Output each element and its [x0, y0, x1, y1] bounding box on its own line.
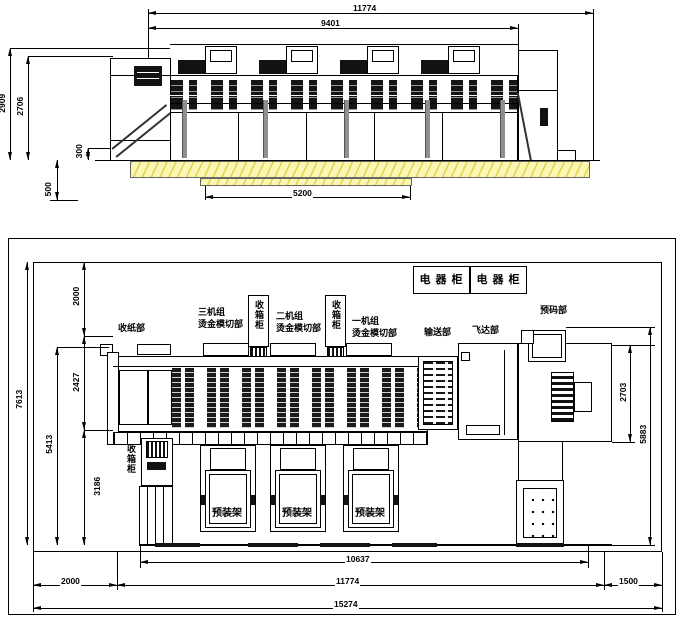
dim-right-unit-depth: 2703 — [619, 383, 628, 402]
dim-left-clearance: 2000 — [60, 577, 81, 586]
dim-line-right-unit-depth — [630, 345, 631, 442]
ladder-rail — [155, 486, 156, 546]
dim-machine-length: 11774 — [335, 577, 360, 586]
floor-pit — [200, 178, 412, 186]
ext-line — [205, 186, 206, 200]
ext-line — [662, 552, 663, 612]
label-unit3-line2: 烫金模切部 — [198, 318, 243, 330]
delivery-cell — [148, 370, 172, 425]
motor-block — [551, 372, 574, 422]
base-chunk — [516, 543, 564, 547]
unit-display-panel — [178, 60, 206, 74]
dim-right-depth: 5883 — [639, 425, 648, 444]
label-collect-cabinet-left: 收箱柜 — [126, 444, 135, 474]
top-extension — [346, 343, 392, 356]
dim-line-right-depth — [650, 327, 651, 545]
label-delivery-section: 收纸部 — [118, 322, 145, 334]
electrical-cabinet-label: 电 器 柜 — [476, 274, 520, 286]
top-extension — [270, 343, 316, 356]
ext-line — [57, 347, 109, 348]
dim-height-machine: 2706 — [16, 97, 25, 116]
label-unit1-section: 一机组 烫金模切部 — [352, 315, 397, 339]
safety-post — [263, 100, 268, 158]
ext-line — [28, 56, 113, 57]
ladder-rail — [163, 486, 164, 546]
electrical-cabinet-box: 电 器 柜 — [470, 266, 527, 294]
safety-post — [425, 100, 430, 158]
body-divider — [238, 112, 239, 160]
unit-display-panel — [340, 60, 368, 74]
ext-line — [593, 9, 594, 160]
dim-line-height-total — [10, 48, 11, 160]
dim-pit-width: 5200 — [292, 189, 313, 198]
label-unit2-section: 二机组 烫金模切部 — [276, 310, 321, 334]
dim-line-machine-depth — [84, 336, 85, 430]
ext-line — [84, 430, 113, 431]
delivery-cell — [119, 370, 148, 425]
feeder-bottom-box — [466, 425, 500, 435]
collect-cabinet-box: 收箱柜 — [325, 295, 346, 347]
label-unit3-section: 三机组 烫金模切部 — [198, 306, 243, 330]
dim-right-clearance: 1500 — [618, 577, 639, 586]
dim-line-total-width — [148, 13, 593, 14]
feeder-inner-line — [504, 350, 505, 435]
label-collect-cabinet: 收箱柜 — [331, 300, 340, 330]
safety-post — [500, 100, 505, 158]
dim-machine-depth: 2427 — [72, 373, 81, 392]
die-cutting-chases — [172, 368, 425, 428]
dim-line-rear-clearance — [84, 262, 85, 336]
dim-line-rack-depth — [84, 430, 85, 545]
rack-tab — [250, 495, 255, 505]
body-divider — [374, 112, 375, 160]
electrical-cabinet-box: 电 器 柜 — [413, 266, 470, 294]
ext-line — [50, 200, 78, 201]
label-unit1-line2: 烫金模切部 — [352, 327, 397, 339]
dim-line-machine-length — [117, 585, 604, 586]
unit-display-panel — [259, 60, 287, 74]
unit-window-inner — [453, 50, 475, 62]
top-extension — [137, 344, 171, 355]
pallet — [523, 488, 557, 538]
dim-total-width: 11774 — [352, 4, 377, 13]
plan-view: 电 器 柜 电 器 柜 收纸部 三机组 烫金模切部 收箱柜 二机组 烫金模切部 … — [0, 230, 684, 623]
ext-line — [117, 552, 118, 590]
control-panel — [134, 66, 162, 86]
conveyor-rollers — [423, 361, 453, 425]
label-unit1-line1: 一机组 — [352, 315, 397, 327]
dim-front-depth: 5413 — [45, 435, 54, 454]
ext-line — [33, 552, 34, 612]
house-mech — [210, 448, 246, 470]
label-unit2-line2: 烫金模切部 — [276, 322, 321, 334]
dim-line-height-machine — [28, 56, 29, 160]
body-line — [170, 44, 518, 45]
label-preload-rack: 预装架 — [282, 507, 312, 521]
label-preload-rack: 预装架 — [355, 507, 385, 521]
feeder-small-box — [461, 352, 470, 361]
dim-total-depth: 7613 — [15, 390, 24, 409]
ext-line — [410, 186, 411, 200]
unit-window-inner — [210, 50, 232, 62]
body-divider — [442, 112, 443, 160]
base-chunk — [392, 543, 437, 547]
label-unit2-line1: 二机组 — [276, 310, 321, 322]
safety-post — [182, 100, 187, 158]
unit-window-inner — [372, 50, 394, 62]
rack-tab — [393, 495, 398, 505]
panel-line — [137, 78, 159, 79]
ext-line — [612, 345, 655, 346]
dim-line-platform-height — [88, 148, 89, 160]
dim-rear-clearance: 2000 — [72, 287, 81, 306]
label-preload-rack: 预装架 — [212, 507, 242, 521]
base-chunk — [248, 543, 298, 547]
ext-line — [565, 545, 655, 546]
dim-pit-depth: 500 — [44, 182, 53, 196]
cad-drawing: 11774 9401 2909 2706 300 500 — [0, 0, 684, 623]
dim-line-pit-depth — [57, 160, 58, 200]
dim-upper-width: 9401 — [320, 19, 341, 28]
label-conveyor-section: 输送部 — [424, 326, 451, 338]
feeder-line — [518, 90, 558, 91]
label-unit3-line1: 三机组 — [198, 306, 243, 318]
elevation-view: 11774 9401 2909 2706 300 500 — [0, 0, 684, 230]
dim-base-length: 10637 — [345, 555, 371, 564]
top-extension — [203, 343, 249, 356]
dim-total-length: 15274 — [333, 600, 359, 609]
rail-line — [170, 95, 518, 96]
body-divider — [306, 112, 307, 160]
panel-line — [137, 72, 159, 73]
dim-rack-depth: 3186 — [93, 477, 102, 496]
motor-side-box — [574, 382, 592, 412]
ext-line — [140, 546, 141, 568]
precode-corner-box — [521, 330, 534, 344]
collect-cabinet-box: 收箱柜 — [248, 295, 269, 347]
label-collect-cabinet: 收箱柜 — [254, 300, 263, 330]
assembly-line — [562, 442, 563, 480]
rack-tab — [320, 495, 325, 505]
ext-line — [10, 48, 170, 49]
ext-line — [566, 327, 655, 328]
dim-platform-height: 300 — [75, 144, 84, 158]
feeder-door-handle — [540, 108, 548, 126]
dim-height-total: 2909 — [0, 94, 7, 113]
electrical-cabinet-label: 电 器 柜 — [419, 274, 463, 286]
floor-platform — [130, 161, 590, 178]
dim-line-total-depth — [27, 262, 28, 545]
unit-display-panel — [421, 60, 449, 74]
ext-line — [612, 442, 635, 443]
ext-line — [604, 552, 605, 590]
dim-line-front-depth — [57, 347, 58, 545]
ladder-rail — [147, 486, 148, 546]
band-line — [113, 366, 428, 367]
ladder-structure — [139, 486, 173, 546]
base-chunk — [155, 543, 200, 547]
ext-line — [84, 336, 113, 337]
unit-window-inner — [291, 50, 313, 62]
cabinet-slot — [147, 462, 166, 470]
cabinet-vent — [146, 441, 168, 458]
base-chunk — [320, 543, 370, 547]
rack-tab — [271, 495, 276, 505]
feeder-tower — [518, 50, 558, 163]
safety-post — [344, 100, 349, 158]
label-feeder-section: 飞达部 — [472, 324, 499, 336]
house-mech — [280, 448, 316, 470]
rack-tab — [344, 495, 349, 505]
label-precode-section: 预码部 — [540, 304, 567, 316]
dim-line-upper-width — [148, 28, 518, 29]
house-mech — [353, 448, 389, 470]
precode-unit-inner — [532, 334, 562, 358]
ext-line — [588, 546, 589, 568]
rack-tab — [201, 495, 206, 505]
